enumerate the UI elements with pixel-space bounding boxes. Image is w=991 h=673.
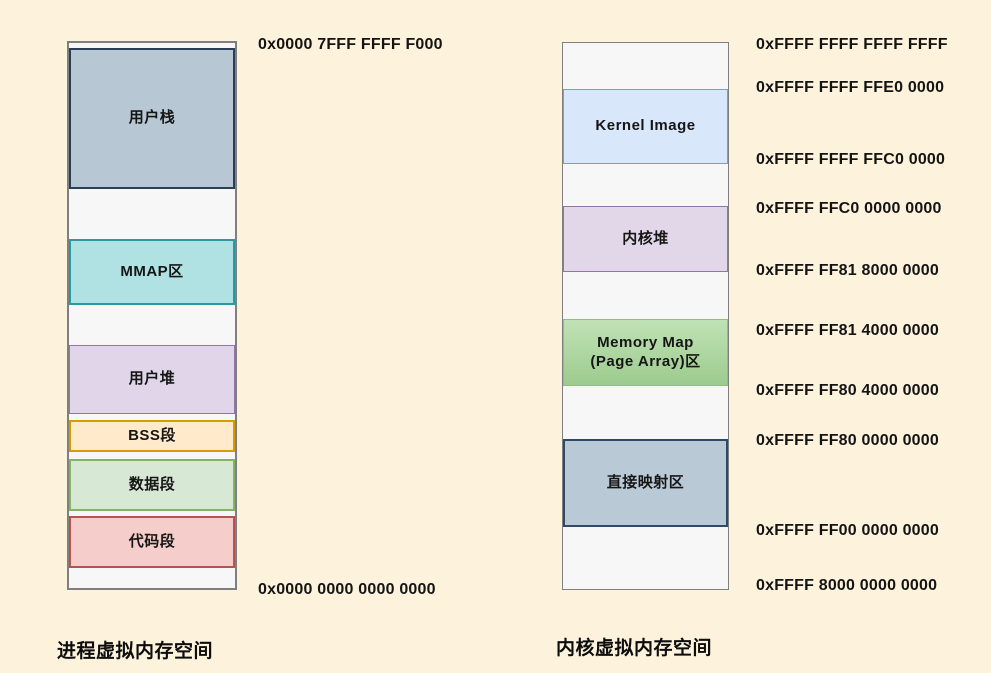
address-kernel-ffc0-high: 0xFFFF FFC0 0000 0000 xyxy=(756,200,942,218)
segment-code: 代码段 xyxy=(69,516,235,568)
address-kernel-top: 0xFFFF FFFF FFFF FFFF xyxy=(756,36,948,54)
address-kernel-ffe0: 0xFFFF FFFF FFE0 0000 xyxy=(756,79,944,97)
segment-mmap: MMAP区 xyxy=(69,239,235,305)
segment-memory-map: Memory Map (Page Array)区 xyxy=(563,319,728,386)
process-memory-column: 用户栈 MMAP区 用户堆 BSS段 数据段 代码段 xyxy=(67,41,237,590)
address-kernel-ff80-4000: 0xFFFF FF80 4000 0000 xyxy=(756,382,939,400)
segment-bss: BSS段 xyxy=(69,420,235,452)
segment-kernel-heap: 内核堆 xyxy=(563,206,728,272)
segment-direct-map: 直接映射区 xyxy=(563,439,728,527)
address-kernel-ff81-8000: 0xFFFF FF81 8000 0000 xyxy=(756,262,939,280)
kernel-memory-title: 内核虚拟内存空间 xyxy=(556,633,712,660)
segment-user-heap: 用户堆 xyxy=(69,345,235,414)
address-kernel-ff00: 0xFFFF FF00 0000 0000 xyxy=(756,522,939,540)
address-kernel-ff80-0000: 0xFFFF FF80 0000 0000 xyxy=(756,432,939,450)
address-user-space-bottom: 0x0000 0000 0000 0000 xyxy=(258,581,436,599)
address-user-space-top: 0x0000 7FFF FFFF F000 xyxy=(258,36,443,54)
segment-kernel-image: Kernel Image xyxy=(563,89,728,164)
address-kernel-ffc0-low: 0xFFFF FFFF FFC0 0000 xyxy=(756,151,945,169)
kernel-memory-column: Kernel Image 内核堆 Memory Map (Page Array)… xyxy=(562,42,729,590)
address-kernel-bottom: 0xFFFF 8000 0000 0000 xyxy=(756,577,937,595)
address-kernel-ff81-4000: 0xFFFF FF81 4000 0000 xyxy=(756,322,939,340)
memory-layout-diagram: 用户栈 MMAP区 用户堆 BSS段 数据段 代码段 0x0000 7FFF F… xyxy=(0,0,991,673)
segment-user-stack: 用户栈 xyxy=(69,48,235,189)
process-memory-title: 进程虚拟内存空间 xyxy=(57,636,213,663)
segment-data: 数据段 xyxy=(69,459,235,511)
